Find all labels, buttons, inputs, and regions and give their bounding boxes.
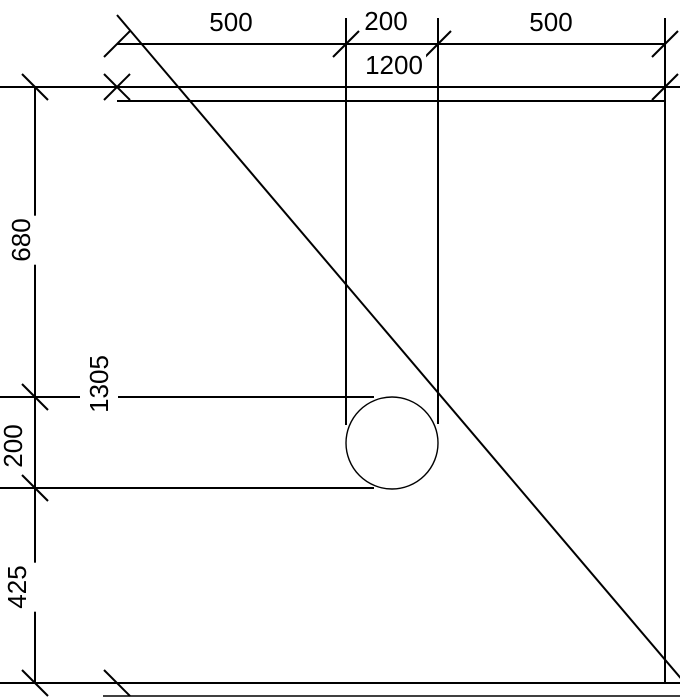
dim-label-200-top: 200: [361, 7, 410, 35]
object-left-edge: [117, 15, 680, 695]
dim-label-500-left: 500: [206, 8, 255, 36]
dim-label-425: 425: [0, 562, 36, 611]
dim-label-1200-overall: 1200: [362, 51, 426, 79]
cad-drawing-canvas: 500 200 500 1200 680 1305 200 425: [0, 0, 680, 698]
slot-end-circle: [346, 397, 438, 489]
dimension-ticks: [22, 31, 678, 696]
technical-drawing: [0, 0, 680, 698]
dim-label-200-left: 200: [0, 421, 27, 470]
dim-label-500-right: 500: [526, 8, 575, 36]
dim-label-680: 680: [2, 215, 40, 264]
dim-label-1305-overall: 1305: [80, 352, 118, 416]
